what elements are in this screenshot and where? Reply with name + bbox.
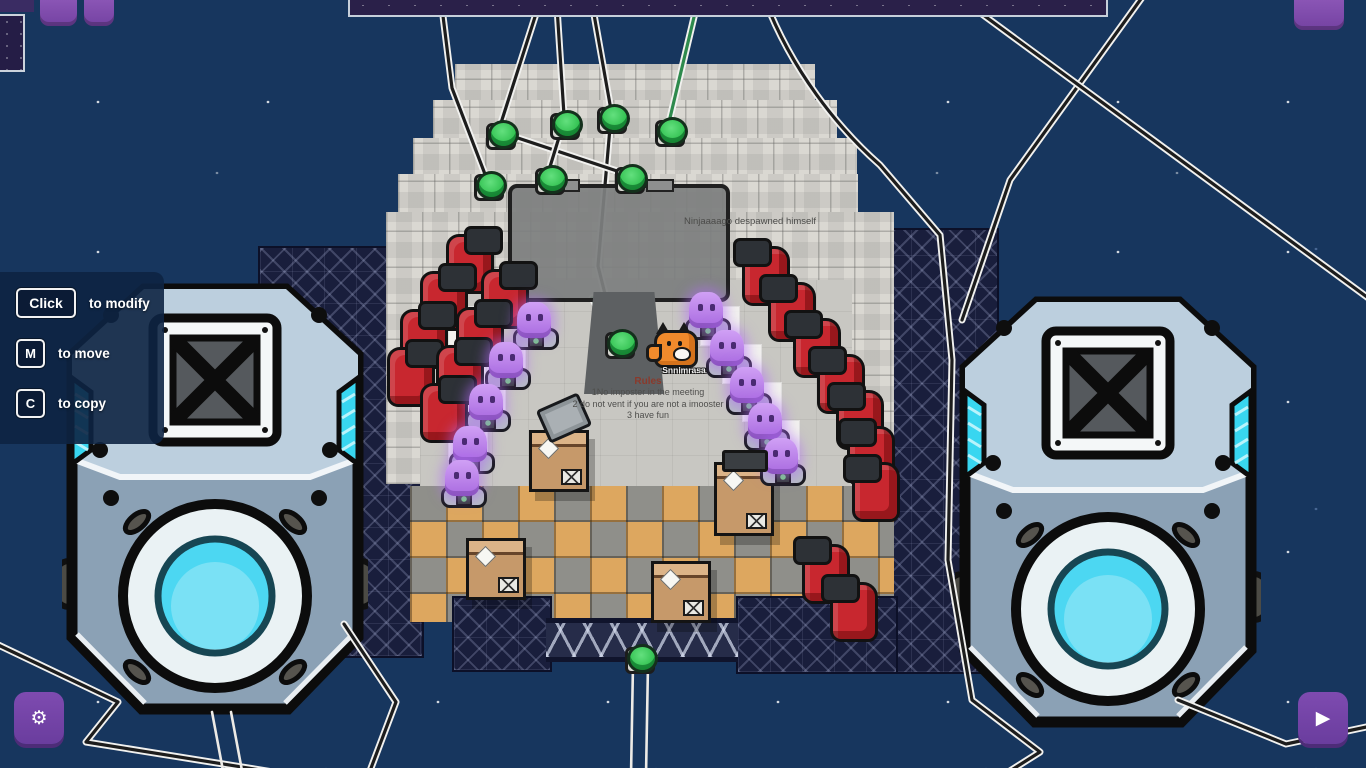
game-viewport: Ninjaaaago despawned himself Rules 1No i… bbox=[0, 0, 1366, 768]
button-dome bbox=[617, 164, 648, 193]
speaker-right[interactable] bbox=[955, 295, 1261, 736]
crate-label bbox=[561, 469, 582, 485]
play-icon: ▶ bbox=[1316, 709, 1331, 728]
hint-label: to modify bbox=[89, 296, 150, 311]
rules-line: 3 have fun bbox=[548, 410, 748, 422]
settings-button[interactable]: ⚙ bbox=[14, 692, 64, 744]
chair-cushion bbox=[474, 299, 513, 328]
side-panel-edge[interactable] bbox=[0, 14, 25, 72]
crew-body bbox=[489, 342, 523, 378]
button-dome bbox=[476, 171, 507, 200]
crew-body bbox=[764, 438, 798, 474]
button-dome bbox=[657, 117, 688, 146]
crew-body bbox=[445, 460, 479, 496]
hint-label: to move bbox=[58, 346, 110, 361]
chair-cushion bbox=[838, 418, 877, 447]
chair-cushion bbox=[784, 310, 823, 339]
green-button[interactable] bbox=[624, 644, 656, 674]
top-bar[interactable] bbox=[348, 0, 1108, 17]
c-keycap: C bbox=[16, 389, 45, 418]
storage-crate[interactable] bbox=[466, 538, 526, 600]
cat-tail bbox=[646, 344, 662, 362]
toolbar-tab-3[interactable] bbox=[1294, 0, 1344, 30]
cat-eye bbox=[667, 341, 671, 346]
lattice-block-left[interactable] bbox=[452, 596, 552, 672]
chair-cushion bbox=[464, 226, 503, 255]
green-button[interactable] bbox=[549, 110, 581, 140]
hint-row-copy: C to copy bbox=[16, 389, 164, 418]
rules-line: 1No imposter in the meeting bbox=[548, 387, 748, 399]
green-button[interactable] bbox=[654, 117, 686, 147]
rules-line: 2 do not vent if you are not a imooster bbox=[548, 399, 748, 411]
hint-panel: Click to modify M to move C to copy bbox=[0, 272, 164, 444]
cat-player[interactable] bbox=[652, 322, 696, 368]
theater-chair[interactable] bbox=[830, 582, 878, 642]
chair-cushion bbox=[438, 263, 477, 292]
laptop-closed[interactable] bbox=[722, 450, 768, 472]
green-button[interactable] bbox=[604, 329, 636, 359]
button-dome bbox=[599, 104, 630, 133]
chair-cushion bbox=[418, 301, 457, 330]
toolbar-tab-2[interactable] bbox=[84, 0, 114, 26]
crate-label bbox=[683, 600, 704, 616]
chair-cushion bbox=[827, 382, 866, 411]
button-dome bbox=[537, 165, 568, 194]
green-button[interactable] bbox=[485, 120, 517, 150]
chair-cushion bbox=[793, 536, 832, 565]
gear-icon: ⚙ bbox=[30, 709, 47, 728]
green-button[interactable] bbox=[596, 104, 628, 134]
rules-title: Rules bbox=[548, 376, 748, 387]
crew-body bbox=[469, 384, 503, 420]
rules-sign[interactable]: Rules 1No imposter in the meeting 2 do n… bbox=[548, 376, 748, 422]
chair-cushion bbox=[808, 346, 847, 375]
toolbar-tab-1[interactable] bbox=[40, 0, 77, 26]
button-dome bbox=[627, 644, 658, 673]
hint-row-move: M to move bbox=[16, 339, 164, 368]
storage-crate[interactable] bbox=[651, 561, 711, 623]
green-button[interactable] bbox=[534, 165, 566, 195]
button-dome bbox=[488, 120, 519, 149]
button-dome bbox=[607, 329, 638, 358]
play-button[interactable]: ▶ bbox=[1298, 692, 1348, 744]
click-keycap: Click bbox=[16, 288, 76, 318]
hint-label: to copy bbox=[58, 396, 106, 411]
speaker-graphic bbox=[955, 295, 1261, 731]
hint-row-modify: Click to modify bbox=[16, 288, 164, 318]
green-button[interactable] bbox=[614, 164, 646, 194]
chair-cushion bbox=[821, 574, 860, 603]
crewmate-blob[interactable] bbox=[440, 450, 484, 508]
m-keycap: M bbox=[16, 339, 45, 368]
cat-muzzle bbox=[673, 347, 691, 361]
player-nametag: Snnimrasa bbox=[646, 365, 722, 375]
screen-notch bbox=[646, 179, 674, 192]
chair-cushion bbox=[733, 238, 772, 267]
chair-cushion bbox=[843, 454, 882, 483]
cat-eye bbox=[678, 341, 682, 346]
theater-chair[interactable] bbox=[852, 462, 900, 522]
crate-label bbox=[746, 513, 767, 529]
chair-cushion bbox=[759, 274, 798, 303]
chair-cushion bbox=[499, 261, 538, 290]
kill-feed-message: Ninjaaaago despawned himself bbox=[684, 216, 816, 227]
crate-label bbox=[498, 577, 519, 593]
button-dome bbox=[552, 110, 583, 139]
corner-fragment bbox=[0, 0, 34, 12]
green-button[interactable] bbox=[473, 171, 505, 201]
